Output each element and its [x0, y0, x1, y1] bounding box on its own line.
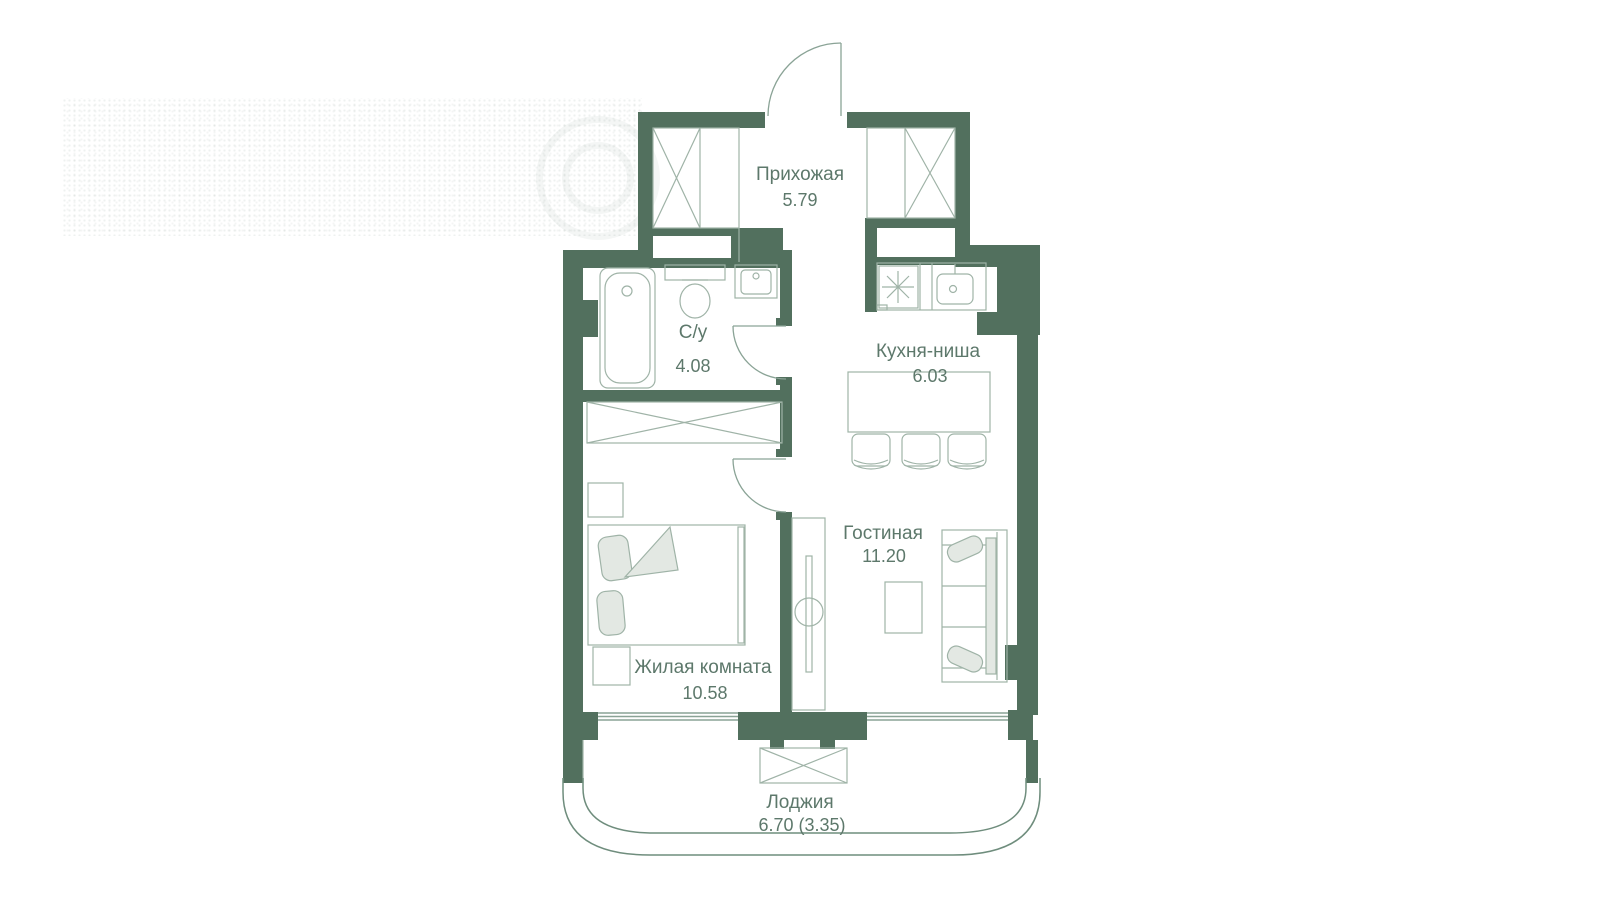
room-name: Кухня-ниша	[876, 341, 981, 362]
room-name: Гостиная	[843, 523, 923, 544]
room-area: 10.58	[682, 683, 727, 703]
room-name: Жилая комната	[634, 657, 772, 678]
bedroom-door	[733, 459, 786, 512]
toilet	[665, 265, 725, 318]
sofa	[942, 530, 1007, 682]
bed	[588, 525, 745, 645]
room-area: 6.70 (3.35)	[758, 815, 845, 835]
soft-bedding	[596, 527, 678, 636]
bathtub	[600, 268, 655, 388]
floor-plan: Прихожая 5.79 С/у 4.08 Кухня-ниша 6.03 Г…	[0, 0, 1601, 900]
room-name: С/у	[679, 322, 708, 343]
kitchen-sink	[937, 264, 973, 304]
washbasin	[735, 265, 777, 298]
room-label-bedroom: Жилая комната 10.58	[634, 657, 772, 703]
room-area: 4.08	[675, 356, 710, 376]
bathroom-door	[733, 326, 786, 379]
living-room-window	[867, 713, 1008, 720]
bar-stool	[902, 434, 940, 469]
room-label-hallway: Прихожая 5.79	[756, 164, 844, 210]
room-label-bathroom: С/у 4.08	[675, 322, 710, 376]
sofa-cushions	[945, 533, 996, 674]
room-label-living: Гостиная 11.20	[843, 523, 923, 566]
floor-plan-stage: Прихожая 5.79 С/у 4.08 Кухня-ниша 6.03 Г…	[0, 0, 1601, 900]
coffee-table	[885, 582, 922, 633]
room-area: 6.03	[912, 366, 947, 386]
room-label-kitchen: Кухня-ниша 6.03	[876, 341, 981, 386]
bedroom-wardrobe	[587, 402, 782, 443]
tv-console	[792, 518, 825, 710]
bar-stool	[948, 434, 986, 469]
bedroom-window	[598, 713, 738, 720]
hallway-wardrobe-right	[867, 128, 955, 218]
bedside-table	[593, 647, 630, 685]
room-area: 11.20	[862, 546, 906, 566]
entrance-door	[768, 43, 841, 116]
bedside-table	[588, 483, 623, 517]
bar-stool	[852, 434, 890, 469]
washing-machine	[879, 266, 918, 308]
room-name: Прихожая	[756, 164, 844, 185]
room-area: 5.79	[782, 190, 817, 210]
room-name: Лоджия	[766, 792, 833, 813]
room-label-loggia: Лоджия 6.70 (3.35)	[758, 792, 845, 835]
air-conditioner-unit	[760, 748, 847, 783]
